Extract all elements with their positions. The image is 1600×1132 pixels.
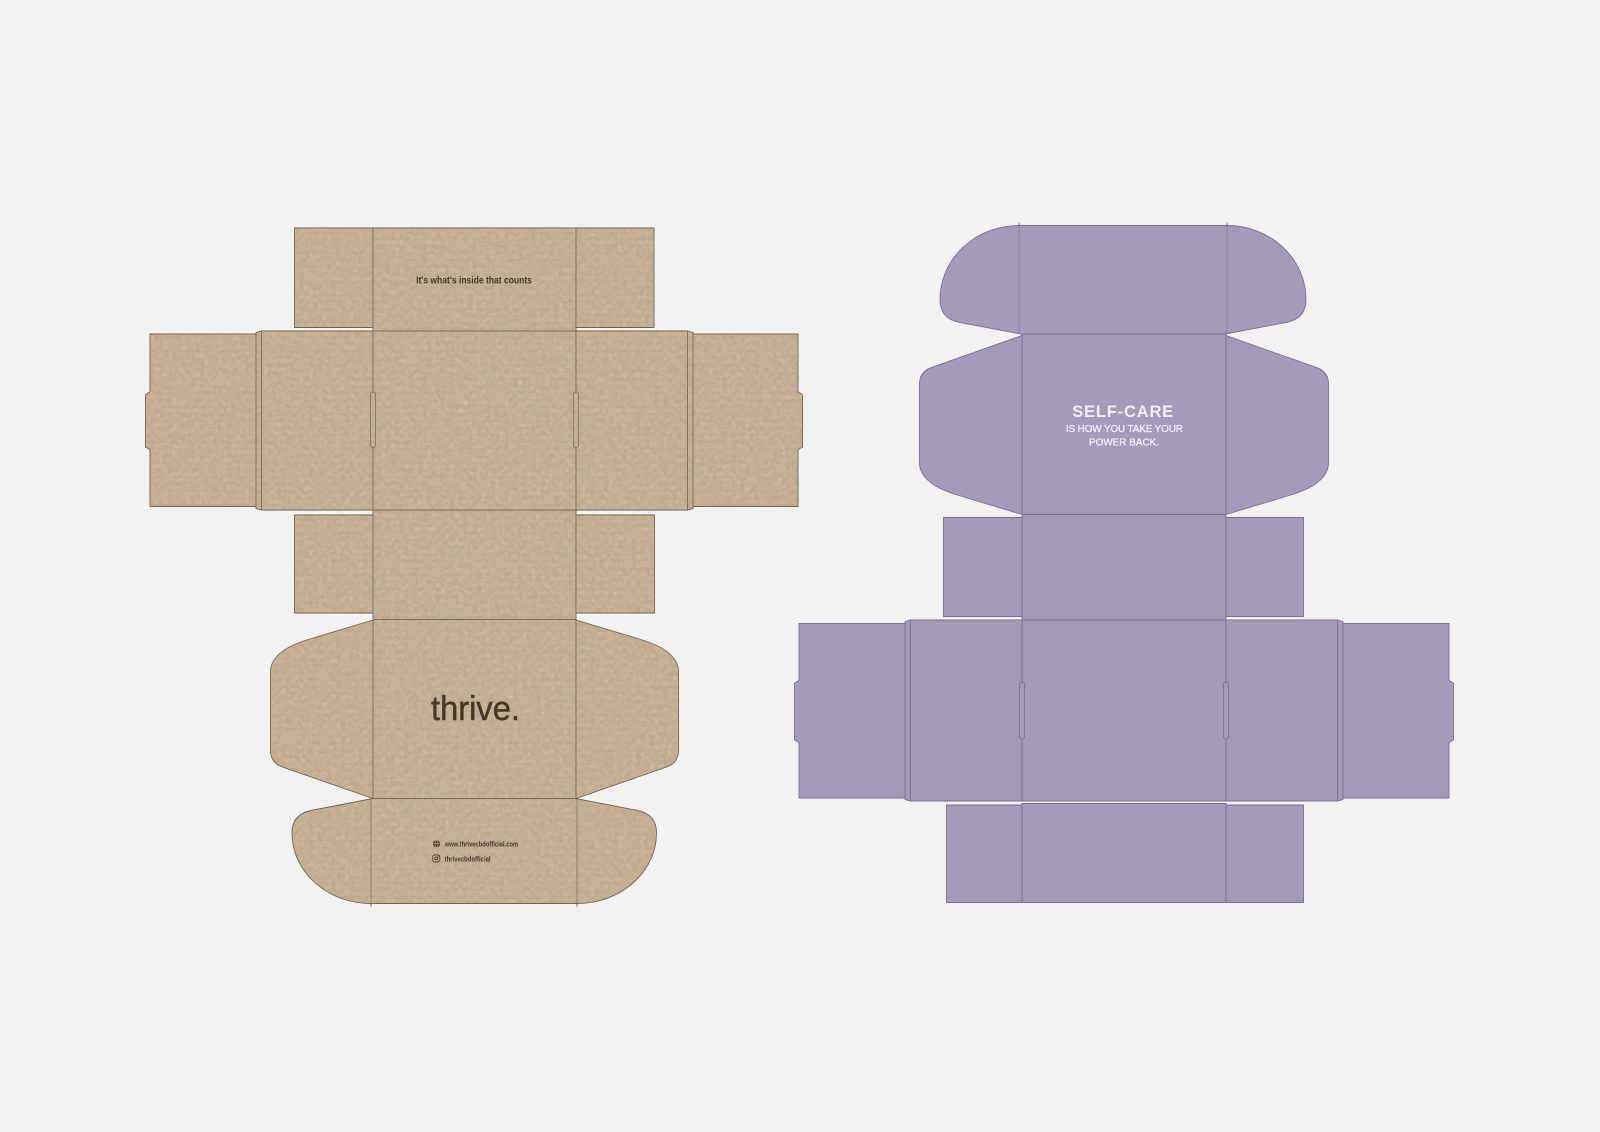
svg-text:www.thrivecbdofficial.com: www.thrivecbdofficial.com (444, 840, 518, 848)
svg-text:It's what's inside that counts: It's what's inside that counts (416, 276, 532, 287)
svg-text:thrive.: thrive. (431, 690, 520, 728)
svg-text:thrivecbdofficial: thrivecbdofficial (445, 855, 491, 863)
svg-text:POWER BACK.: POWER BACK. (1089, 437, 1159, 448)
svg-text:SELF-CARE: SELF-CARE (1072, 403, 1173, 421)
svg-text:IS HOW YOU TAKE YOUR: IS HOW YOU TAKE YOUR (1066, 424, 1183, 435)
